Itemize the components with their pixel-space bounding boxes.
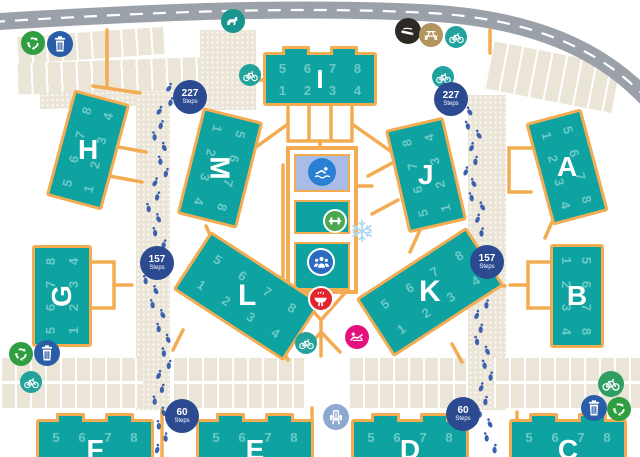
building-roof-tab [56, 413, 85, 422]
walkway-path [109, 176, 142, 182]
grill-station-icon [308, 286, 334, 312]
walkway-path [173, 330, 183, 350]
building-letter: C [558, 436, 578, 457]
building-roof-tab [371, 413, 400, 422]
sun-lounge-icon [345, 325, 369, 349]
bike-rack-left-of-i-icon [239, 64, 261, 86]
building-letter: H [78, 136, 98, 164]
steps-count: 157 [479, 254, 496, 264]
walkway-path [93, 86, 140, 93]
walkway-path [509, 148, 531, 192]
steps-badge-60-right: 60Steps [446, 397, 480, 431]
walkway-path [452, 344, 462, 362]
trash-bottom-right-icon [581, 395, 607, 421]
bike-rack-center-icon [295, 332, 317, 354]
steps-badge-227-right: 227Steps [434, 82, 468, 116]
building-letter: F [86, 436, 103, 457]
building-roof-tab [105, 413, 134, 422]
steps-count: 227 [182, 89, 199, 99]
building-letter: G [48, 285, 76, 307]
building-B: 15263748B [550, 244, 604, 348]
walkway-path [321, 332, 340, 352]
recycling-bottom-right-icon [607, 397, 631, 421]
building-letter-wrap: C [512, 422, 624, 457]
steps-count: 227 [443, 91, 460, 101]
steps-count: 60 [176, 408, 187, 418]
building-roof-tab [282, 46, 310, 55]
building-F: 56781234F [36, 419, 154, 457]
bike-rack-bottom-right-icon [598, 371, 624, 397]
fitness-center-icon [323, 209, 347, 233]
building-roof-tab [330, 46, 358, 55]
smoking-area-icon [395, 18, 421, 44]
walkway-path [410, 230, 420, 252]
building-letter: I [316, 66, 323, 92]
building-letter: B [567, 282, 587, 310]
recycling-left-icon [9, 342, 33, 366]
building-letter: D [400, 436, 420, 457]
steps-count: 157 [149, 255, 166, 265]
walkway-path [93, 262, 114, 308]
building-roof-tab [529, 413, 558, 422]
building-letter: E [246, 436, 265, 457]
building-C: 56781234C [509, 419, 627, 457]
building-letter: J [418, 161, 434, 189]
building-roof-tab [216, 413, 245, 422]
ice-machine-icon [349, 218, 375, 244]
steps-label: Steps [174, 418, 189, 424]
building-letter: A [557, 153, 577, 181]
building-E: 56781234E [196, 419, 314, 457]
steps-label: Steps [455, 416, 470, 422]
recycling-top-left-icon [21, 31, 45, 55]
steps-count: 60 [457, 406, 468, 416]
walkway-path [545, 222, 552, 238]
building-letter: K [419, 277, 441, 307]
steps-badge-157-left: 157Steps [140, 246, 174, 280]
walkway-path [288, 106, 352, 141]
picnic-area-icon [419, 23, 443, 47]
building-letter-wrap: B [553, 247, 601, 345]
walkway-path [372, 200, 398, 214]
building-letter-wrap: F [39, 422, 151, 457]
steps-label: Steps [149, 265, 164, 271]
building-letter-wrap: E [199, 422, 311, 457]
building-letter-wrap: D [354, 422, 466, 457]
steps-label: Steps [479, 264, 494, 270]
building-roof-tab [265, 413, 294, 422]
building-letter-wrap: G [35, 248, 89, 344]
walkway-path [528, 262, 549, 308]
bike-rack-bottom-left-icon [20, 371, 42, 393]
adirondack-chairs-icon [323, 404, 349, 430]
walkway-path [368, 162, 394, 176]
building-roof-tab [420, 413, 449, 422]
building-letter-wrap: I [266, 55, 374, 103]
building-G: 84736251G [32, 245, 92, 347]
building-letter: L [238, 281, 256, 311]
clubhouse-icon [307, 248, 335, 276]
steps-badge-227-left: 227Steps [173, 80, 207, 114]
property-map: 56781234I84736251H15263748M84736251J1526… [0, 0, 640, 457]
trash-left-icon [34, 340, 60, 366]
dog-station-icon [221, 9, 245, 33]
bike-rack-top-right-icon [445, 26, 467, 48]
building-I: 56781234I [263, 52, 377, 106]
steps-label: Steps [443, 101, 458, 107]
steps-badge-60-left: 60Steps [165, 399, 199, 433]
steps-badge-157-right: 157Steps [470, 245, 504, 279]
trash-top-left-icon [47, 31, 73, 57]
pool-icon [308, 158, 336, 186]
building-letter: M [206, 156, 234, 179]
steps-label: Steps [182, 99, 197, 105]
